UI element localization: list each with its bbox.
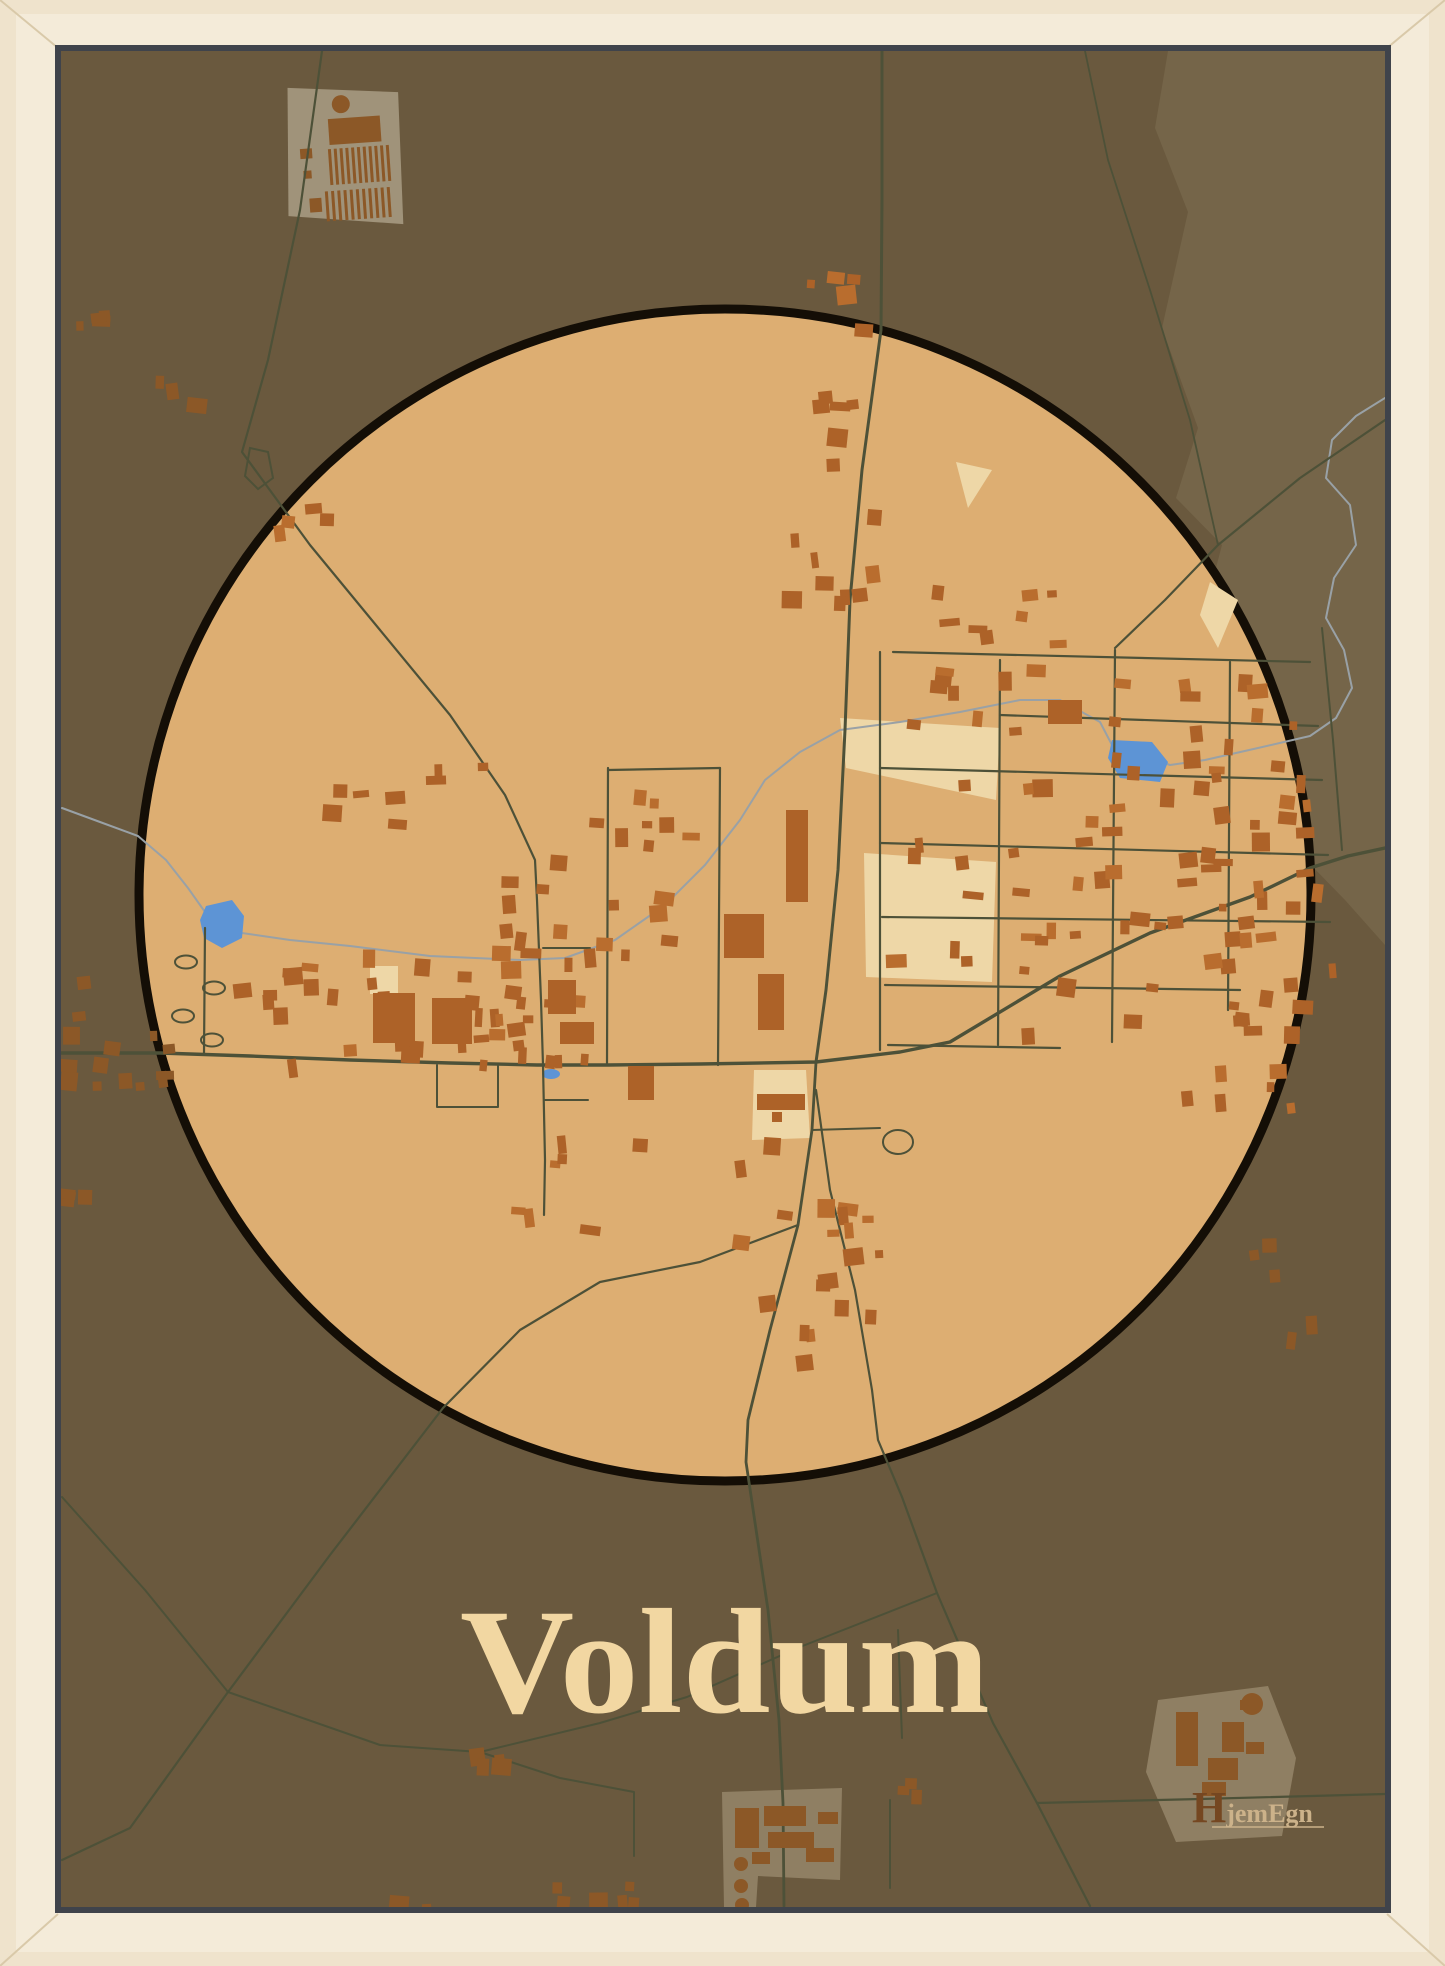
building	[950, 941, 960, 959]
building	[322, 804, 342, 822]
building	[843, 1247, 865, 1266]
building	[426, 776, 446, 786]
building	[650, 798, 659, 808]
building	[1302, 799, 1311, 812]
building	[1102, 827, 1123, 837]
building	[1160, 788, 1175, 807]
building	[1252, 832, 1270, 851]
building	[782, 591, 803, 609]
building	[1267, 1082, 1275, 1092]
building	[795, 1354, 814, 1372]
building	[768, 1832, 814, 1848]
building	[1201, 864, 1222, 872]
building	[1200, 847, 1216, 864]
building	[1035, 936, 1049, 946]
building	[1279, 794, 1296, 810]
building	[908, 848, 921, 865]
building	[1177, 877, 1197, 887]
building	[961, 956, 973, 967]
building	[682, 832, 700, 840]
building	[1296, 775, 1306, 793]
building	[1114, 678, 1131, 689]
building	[548, 980, 576, 1014]
building	[1056, 977, 1077, 998]
building	[609, 900, 619, 911]
building	[1072, 876, 1083, 891]
building	[998, 672, 1012, 691]
building	[552, 1882, 562, 1893]
building	[1176, 1712, 1198, 1766]
building	[817, 1199, 835, 1218]
building	[491, 1757, 512, 1775]
building	[1253, 880, 1264, 898]
building	[1213, 806, 1231, 825]
building	[165, 383, 179, 401]
building	[273, 1007, 288, 1025]
building	[752, 1852, 770, 1864]
building	[1178, 852, 1198, 869]
building	[150, 1031, 158, 1042]
building	[262, 994, 274, 1010]
building	[301, 963, 318, 973]
building	[826, 458, 840, 472]
building	[1129, 911, 1150, 927]
building	[875, 1250, 883, 1258]
building	[1009, 727, 1022, 736]
building	[90, 312, 107, 324]
building	[818, 1812, 838, 1824]
building	[78, 1190, 92, 1205]
building	[504, 985, 522, 1001]
building	[186, 397, 208, 414]
building	[363, 950, 375, 968]
building	[512, 1040, 524, 1052]
building	[63, 1027, 80, 1045]
building	[118, 1073, 132, 1089]
building	[846, 399, 859, 410]
building	[92, 1057, 109, 1074]
building	[499, 923, 513, 939]
silo	[734, 1857, 748, 1871]
building	[826, 428, 848, 448]
building	[1238, 916, 1255, 931]
building	[806, 1848, 834, 1862]
building	[1085, 816, 1098, 828]
building	[501, 961, 522, 979]
building	[815, 576, 834, 591]
building	[632, 1138, 648, 1152]
building	[367, 977, 378, 990]
building	[772, 1112, 782, 1122]
building	[1208, 1758, 1238, 1780]
building	[1292, 1000, 1313, 1015]
building	[1008, 848, 1020, 859]
building	[1259, 990, 1274, 1008]
building	[1246, 1742, 1264, 1754]
building	[1124, 1014, 1143, 1029]
building	[475, 1008, 483, 1027]
building	[303, 979, 319, 996]
building	[817, 1272, 838, 1290]
building	[580, 1054, 588, 1066]
building	[649, 904, 668, 922]
building	[1019, 966, 1030, 975]
building	[1249, 1249, 1260, 1260]
building	[844, 1222, 854, 1238]
building	[735, 1808, 759, 1848]
building	[834, 596, 846, 611]
building	[1215, 1065, 1227, 1082]
building	[621, 949, 630, 961]
building	[911, 1790, 922, 1805]
building	[1283, 977, 1298, 992]
building	[1047, 590, 1057, 598]
building	[76, 321, 83, 331]
building	[596, 937, 613, 951]
building	[659, 817, 674, 833]
building	[1105, 865, 1122, 880]
building	[1296, 827, 1315, 839]
building	[343, 1044, 357, 1057]
building	[489, 1029, 505, 1041]
building	[523, 1015, 533, 1023]
building	[373, 993, 415, 1043]
building	[972, 711, 983, 728]
road	[607, 768, 608, 1065]
building	[653, 891, 675, 907]
building	[661, 935, 679, 948]
building	[1109, 803, 1126, 813]
building	[1048, 700, 1082, 724]
building	[1181, 1090, 1194, 1106]
building	[865, 565, 881, 584]
building	[1286, 901, 1301, 914]
building	[550, 855, 568, 872]
building	[851, 587, 868, 602]
building	[135, 1082, 144, 1091]
building	[1250, 820, 1260, 830]
building	[72, 1011, 86, 1022]
building	[847, 274, 861, 285]
map-focus-circle	[139, 309, 1311, 1481]
building	[557, 1154, 567, 1164]
building	[401, 1046, 421, 1063]
building	[589, 818, 604, 829]
building	[1262, 1238, 1277, 1253]
brand-logo-initial: H	[1192, 1783, 1226, 1832]
building	[955, 855, 969, 870]
building	[812, 399, 830, 415]
building	[930, 680, 948, 694]
building	[1154, 922, 1166, 931]
building	[1015, 611, 1028, 623]
building	[625, 1882, 634, 1892]
building	[1203, 953, 1222, 970]
silo	[734, 1879, 748, 1893]
pond	[542, 1069, 560, 1079]
building	[1178, 679, 1191, 693]
building	[283, 967, 304, 986]
building	[507, 1022, 526, 1038]
building	[479, 1059, 488, 1071]
building	[477, 1758, 490, 1776]
building	[1234, 1012, 1249, 1028]
building	[865, 1309, 877, 1324]
building	[1108, 716, 1121, 727]
building	[1075, 837, 1093, 848]
building	[77, 976, 92, 990]
building	[1167, 915, 1184, 929]
building	[1224, 931, 1241, 947]
building	[790, 533, 799, 548]
building	[807, 279, 815, 288]
building	[1070, 931, 1081, 939]
building	[1183, 750, 1201, 769]
building	[1211, 772, 1221, 782]
building	[305, 503, 323, 515]
building	[502, 895, 517, 914]
building	[1222, 1722, 1244, 1752]
building	[1328, 963, 1336, 978]
building	[560, 1022, 594, 1044]
building	[1271, 760, 1286, 772]
building	[1190, 725, 1204, 743]
building	[1296, 869, 1314, 878]
building	[799, 1325, 809, 1342]
building	[1244, 1026, 1263, 1036]
voldum-map-svg: Voldum HjemEgn	[0, 0, 1445, 1966]
building	[907, 719, 922, 730]
building	[495, 1014, 503, 1026]
building	[520, 948, 541, 959]
building	[867, 509, 882, 526]
building	[273, 525, 286, 543]
farm-complex	[280, 80, 408, 232]
building	[886, 954, 907, 968]
building	[327, 989, 339, 1006]
building	[1021, 589, 1038, 602]
building	[643, 840, 654, 852]
building	[584, 948, 597, 968]
building	[827, 1230, 839, 1237]
building	[764, 1806, 806, 1826]
building	[732, 1234, 751, 1251]
building	[1120, 920, 1129, 934]
building	[1180, 691, 1200, 702]
building	[931, 585, 944, 601]
building	[1286, 1102, 1295, 1113]
building	[353, 790, 370, 798]
building	[1026, 664, 1046, 677]
building	[724, 914, 764, 958]
building	[233, 982, 253, 999]
building	[60, 1071, 79, 1092]
building	[1306, 1316, 1318, 1335]
building	[564, 958, 572, 972]
building	[979, 630, 994, 646]
building	[1219, 904, 1227, 912]
building	[1021, 1028, 1035, 1045]
building	[320, 513, 334, 526]
building	[557, 1135, 567, 1154]
building	[162, 1044, 175, 1055]
framed-map-poster: Voldum HjemEgn	[0, 0, 1445, 1966]
building	[1229, 1001, 1240, 1010]
building	[1251, 708, 1263, 723]
building	[1224, 739, 1234, 756]
building	[758, 1295, 777, 1313]
building	[897, 1786, 909, 1795]
building	[734, 1160, 747, 1178]
building	[1050, 640, 1067, 649]
building	[553, 924, 568, 939]
building	[1284, 1026, 1300, 1044]
building	[103, 1041, 121, 1057]
building	[589, 1892, 608, 1908]
map-circle-layer	[139, 309, 1311, 1481]
building	[155, 376, 164, 389]
building	[1247, 683, 1269, 699]
building	[958, 779, 971, 791]
building	[615, 828, 628, 847]
building	[478, 763, 489, 772]
building	[473, 1034, 489, 1043]
building	[948, 686, 959, 701]
building	[1311, 883, 1324, 903]
building	[1146, 983, 1159, 992]
building	[862, 1216, 873, 1223]
silo	[1241, 1693, 1263, 1715]
building	[1269, 1269, 1280, 1282]
building	[1111, 752, 1122, 768]
building	[642, 821, 652, 828]
building	[757, 1094, 805, 1110]
building	[827, 271, 846, 285]
building	[763, 1137, 781, 1156]
building	[837, 1207, 849, 1226]
building	[492, 946, 511, 962]
building	[836, 285, 857, 306]
building	[156, 1071, 174, 1080]
building	[536, 884, 549, 895]
building	[1215, 1094, 1227, 1112]
building	[1012, 887, 1030, 897]
building	[1289, 721, 1297, 730]
building	[501, 876, 518, 888]
building	[758, 974, 784, 1030]
building	[333, 784, 347, 798]
building	[385, 791, 406, 805]
building	[834, 1300, 848, 1317]
building	[1032, 779, 1053, 797]
building	[414, 958, 431, 977]
building	[457, 971, 471, 982]
building	[1239, 932, 1252, 948]
brand-logo-rest: jemEgn	[1225, 1799, 1313, 1828]
building	[1193, 781, 1210, 797]
building	[388, 819, 407, 830]
building	[545, 1055, 557, 1070]
building	[1278, 811, 1297, 825]
building	[1023, 783, 1034, 795]
building	[1269, 1064, 1287, 1079]
building	[93, 1081, 102, 1090]
building	[854, 323, 873, 338]
building	[786, 810, 808, 902]
building	[432, 998, 472, 1044]
building	[633, 789, 647, 806]
building	[1127, 766, 1140, 781]
poster-title: Voldum	[460, 1579, 990, 1745]
building	[628, 1066, 654, 1100]
